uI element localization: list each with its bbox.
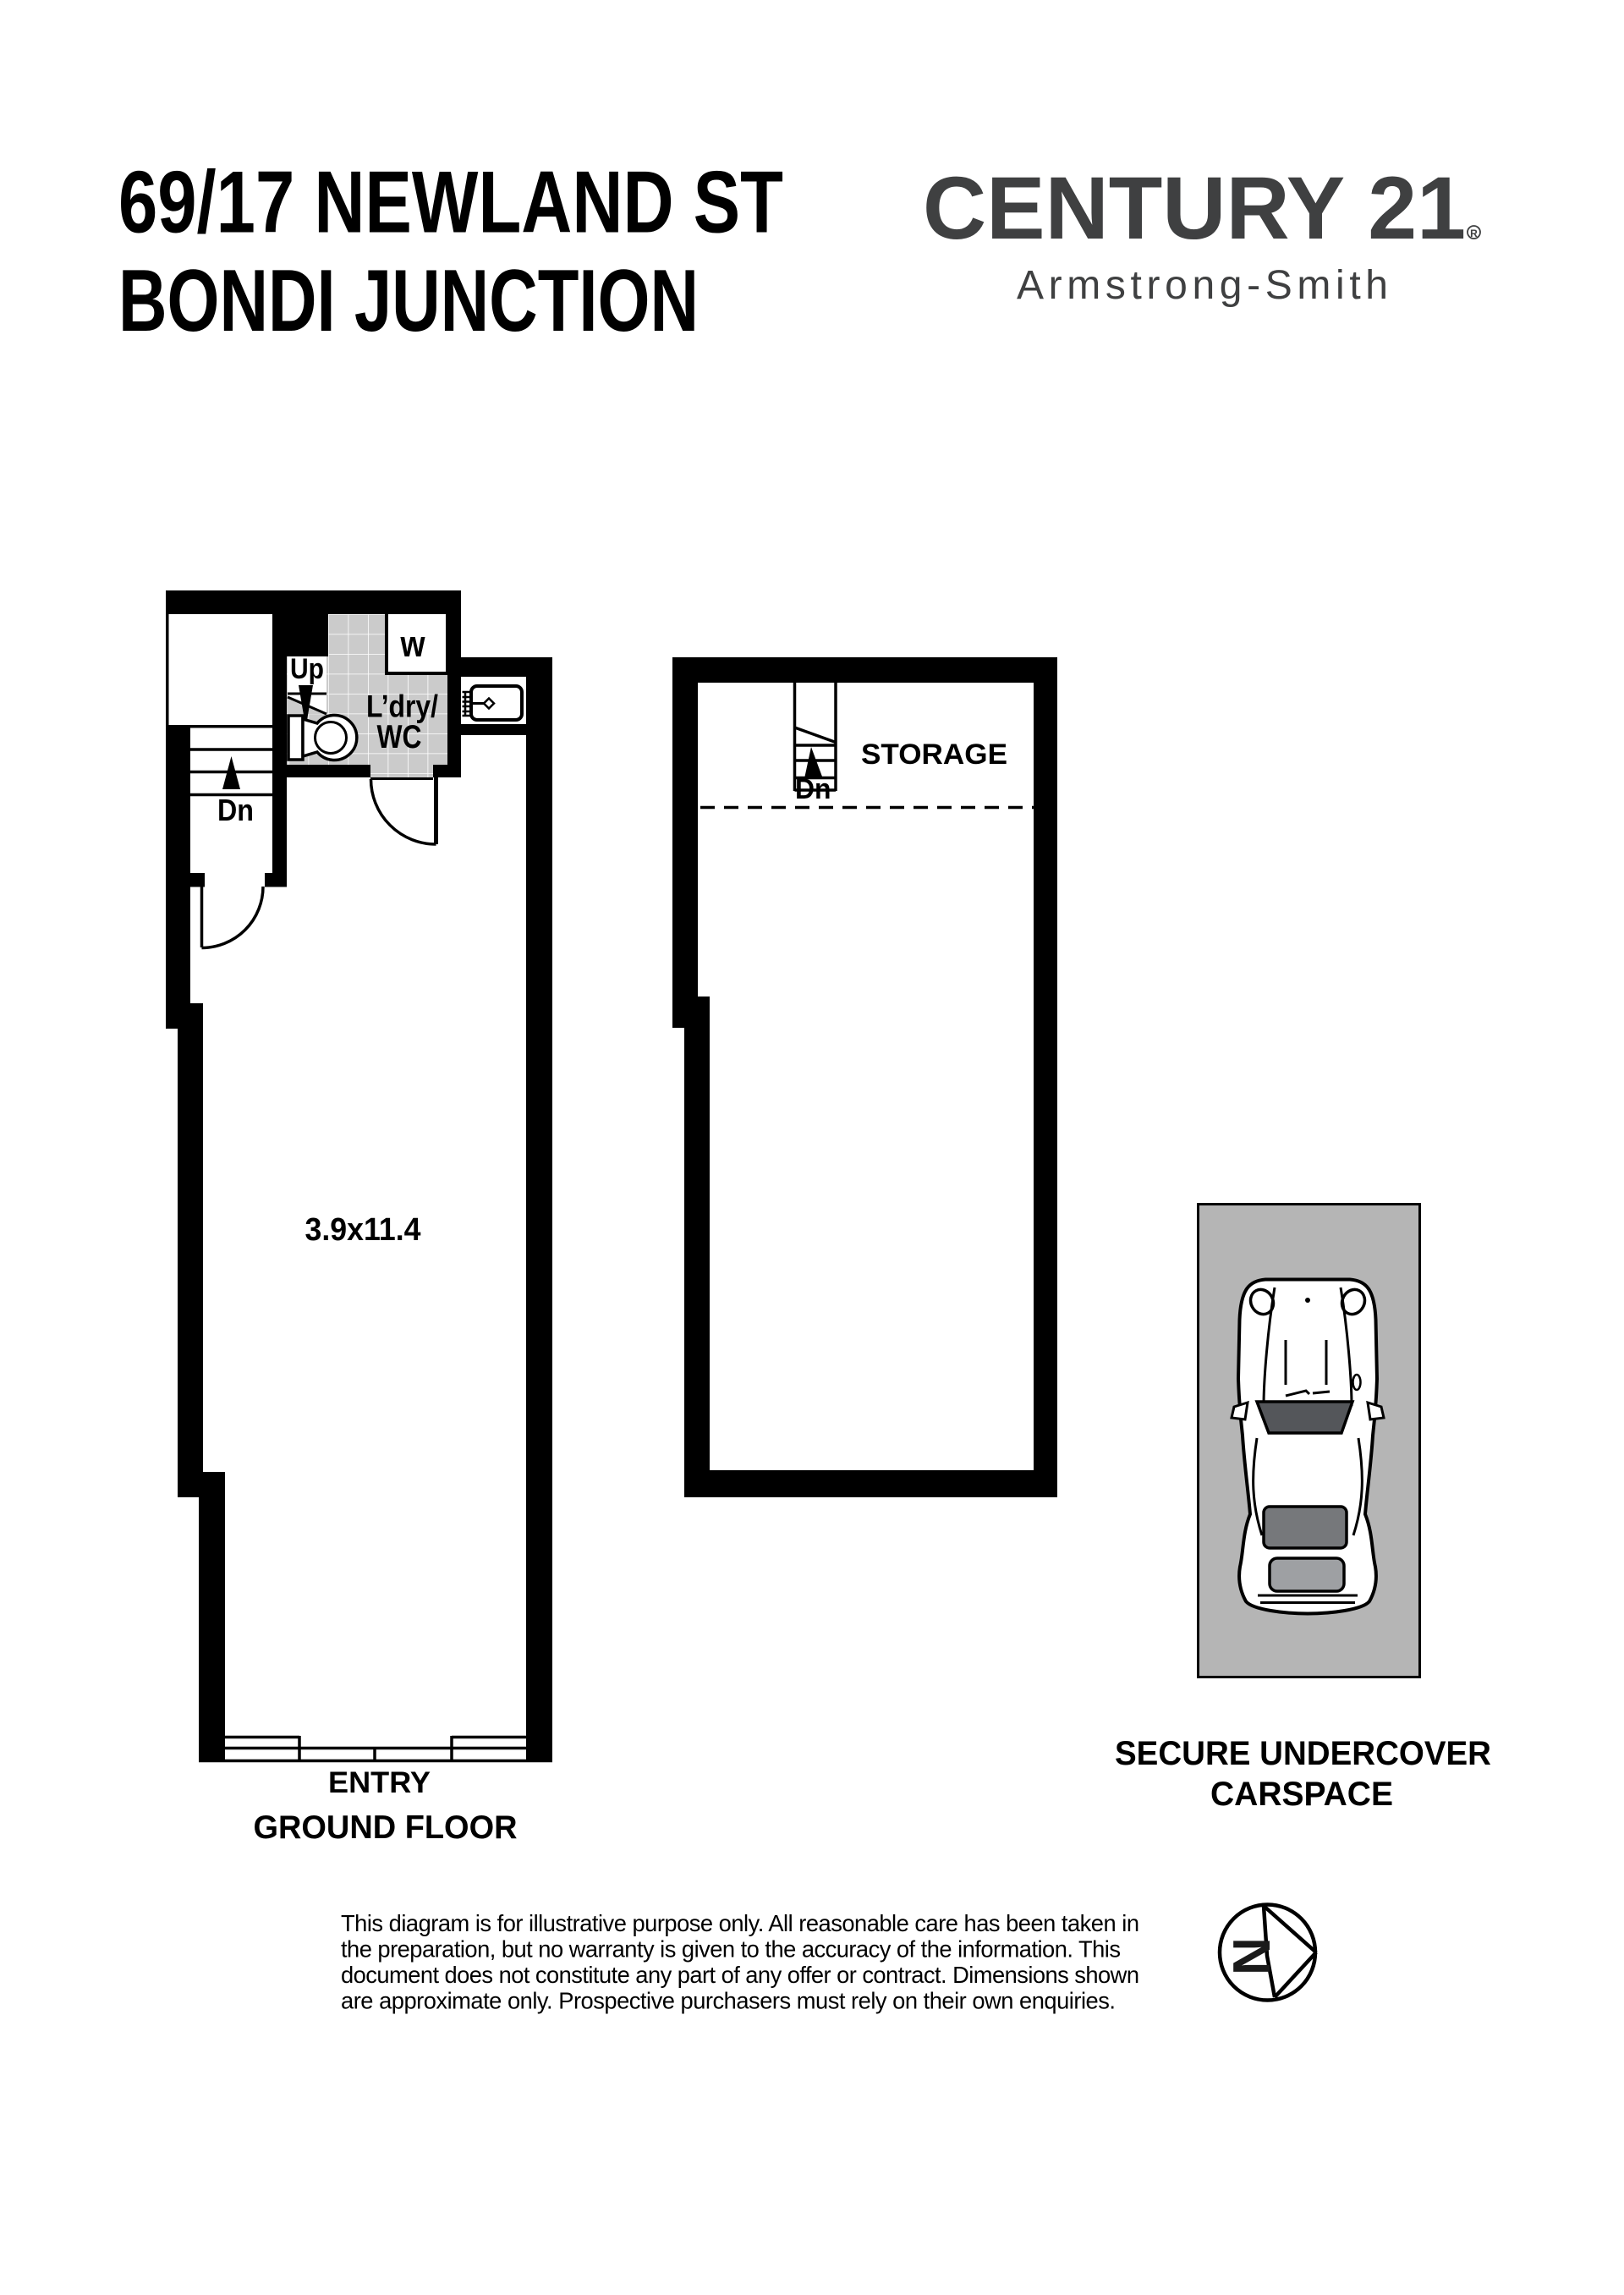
svg-text:w: w: [400, 623, 425, 665]
svg-text:69/17 NEWLAND ST: 69/17 NEWLAND ST: [118, 153, 783, 251]
svg-text:GROUND FLOOR: GROUND FLOOR: [254, 1809, 518, 1846]
svg-text:R: R: [1470, 228, 1478, 239]
svg-text:STORAGE: STORAGE: [861, 738, 1007, 771]
svg-text:Up: Up: [290, 653, 324, 685]
svg-text:CENTURY 21: CENTURY 21: [923, 159, 1466, 258]
svg-text:Dn: Dn: [217, 793, 254, 827]
svg-text:3.9x11.4: 3.9x11.4: [305, 1212, 421, 1248]
svg-text:the preparation, but no warran: the preparation, but no warranty is give…: [341, 1936, 1121, 1963]
svg-text:CARSPACE: CARSPACE: [1210, 1776, 1393, 1813]
svg-text:SECURE UNDERCOVER: SECURE UNDERCOVER: [1115, 1735, 1491, 1772]
svg-text:are approximate only. Prospect: are approximate only. Prospective purcha…: [341, 1988, 1116, 2014]
svg-text:ENTRY: ENTRY: [328, 1765, 431, 1799]
svg-text:Dn: Dn: [795, 773, 831, 805]
svg-text:WC: WC: [377, 719, 422, 755]
svg-text:This diagram is for illustrati: This diagram is for illustrative purpose…: [341, 1910, 1139, 1936]
svg-text:N: N: [1223, 1937, 1281, 1975]
svg-text:BONDI JUNCTION: BONDI JUNCTION: [118, 251, 699, 349]
svg-text:document does not constitute a: document does not constitute any part of…: [341, 1962, 1139, 1988]
